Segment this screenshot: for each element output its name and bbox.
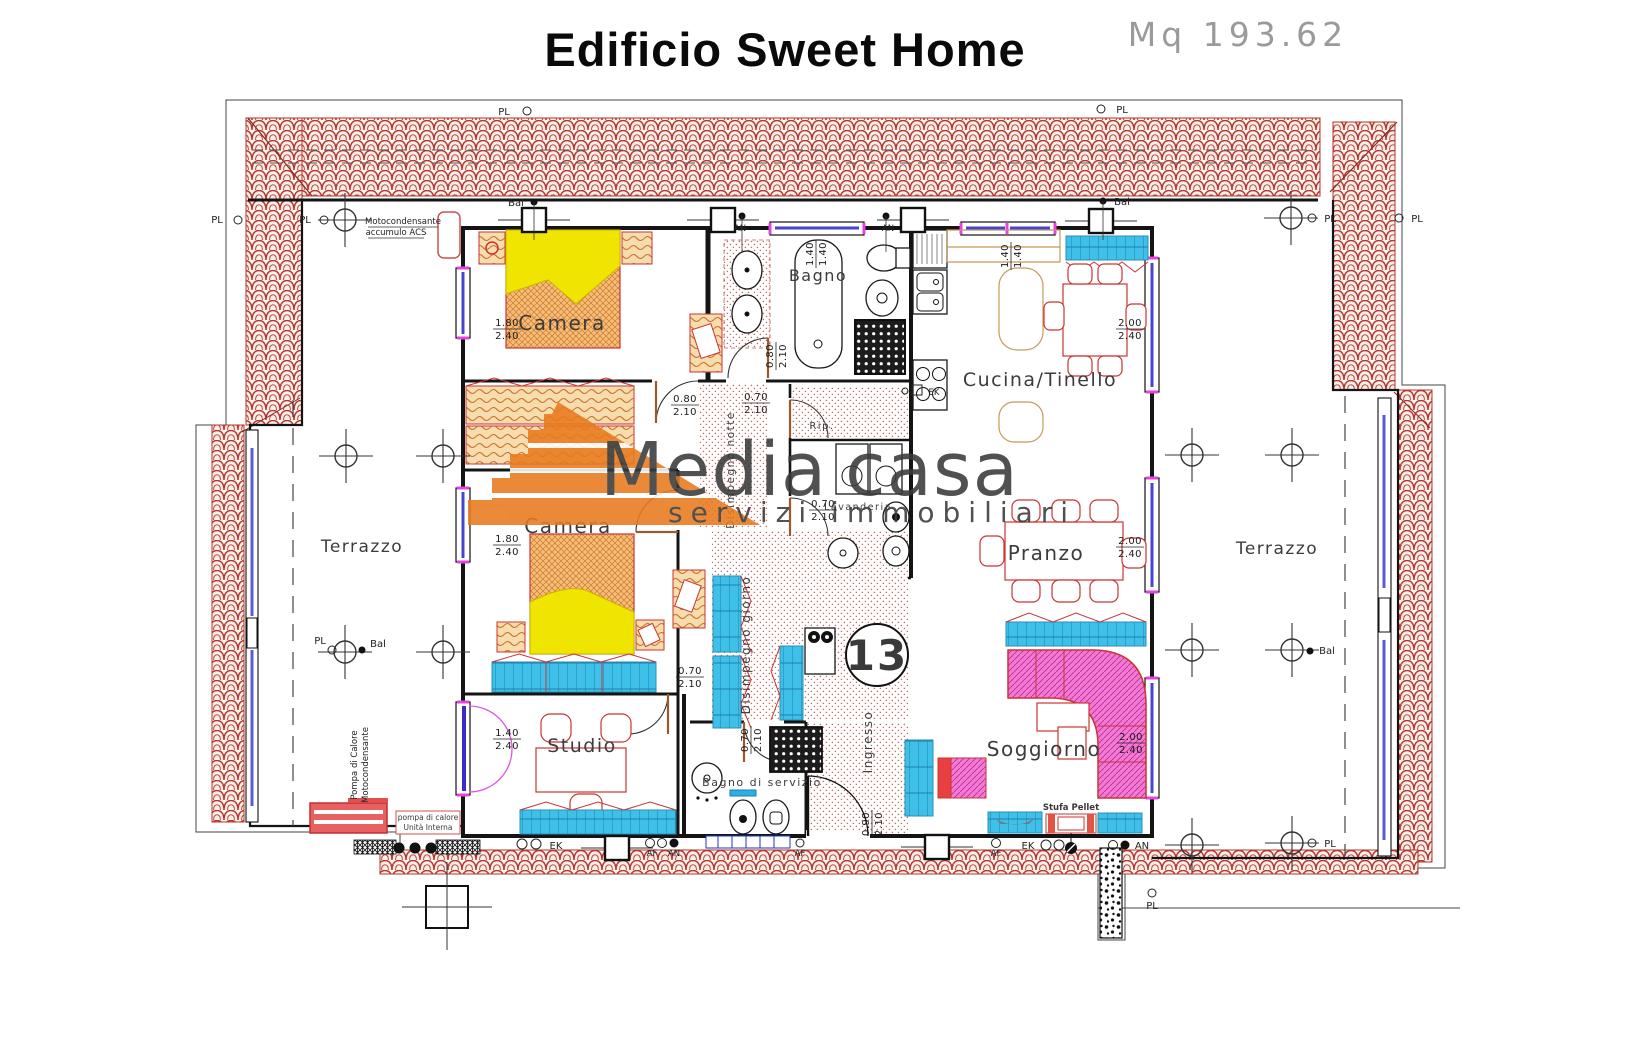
motocondensante-unit: Motocondensante accumulo ACS: [365, 212, 460, 258]
window-camera1: [456, 268, 470, 338]
svg-text:2.40: 2.40: [1119, 745, 1143, 756]
room-label-terrazzo-right: Terrazzo: [1235, 539, 1318, 559]
svg-text:PL: PL: [211, 215, 223, 226]
svg-text:AF: AF: [795, 849, 806, 859]
svg-text:PL: PL: [498, 107, 510, 118]
room-label-studio: Studio: [547, 735, 617, 757]
svg-text:2.10: 2.10: [874, 812, 885, 836]
unit-number-badge: 13: [846, 624, 908, 686]
svg-text:AN: AN: [668, 849, 680, 859]
svg-text:Pompa di Calore: Pompa di Calore: [350, 730, 360, 799]
svg-text:2.10: 2.10: [673, 407, 697, 418]
svg-text:PL: PL: [1116, 105, 1128, 116]
svg-text:2.00: 2.00: [1118, 536, 1142, 547]
svg-text:PL: PL: [299, 215, 311, 226]
window-cucina-top: [961, 222, 1055, 235]
floor-plan-page: Edificio Sweet Home Mq 193.62: [0, 0, 1636, 1052]
stufa-pellet-label: Stufa Pellet: [1043, 803, 1099, 813]
svg-text:0.90: 0.90: [861, 812, 872, 836]
terrace-railing-left: [246, 430, 258, 822]
room-label-cucina: Cucina/Tinello: [963, 369, 1117, 391]
svg-text:1.40: 1.40: [495, 728, 519, 739]
svg-text:PL: PL: [1324, 839, 1336, 850]
window-pranzo: [1145, 478, 1159, 592]
window-soggiorno: [1145, 678, 1159, 798]
floorplan-drawing: Edificio Sweet Home Mq 193.62: [0, 0, 1636, 1052]
page-title: Edificio Sweet Home: [544, 23, 1025, 76]
svg-text:2.10: 2.10: [744, 405, 768, 416]
room-label-bagno-servizio: Bagno di servizio: [702, 776, 822, 789]
svg-text:2.10: 2.10: [753, 728, 764, 752]
svg-text:Bal: Bal: [508, 198, 524, 209]
svg-text:0.70: 0.70: [744, 392, 768, 403]
svg-text:PL: PL: [314, 636, 326, 647]
svg-text:2.00: 2.00: [1119, 732, 1143, 743]
svg-text:Motocondensante: Motocondensante: [365, 217, 441, 227]
svg-text:Bal: Bal: [1114, 197, 1130, 208]
room-label-disimpegno-giorno: Disimpegno giorno: [739, 576, 753, 715]
svg-text:Unità Interna: Unità Interna: [403, 823, 452, 832]
window-bagno: [770, 222, 864, 235]
svg-text:Bal: Bal: [1319, 646, 1335, 657]
terrace-railing-right: [1378, 398, 1391, 856]
svg-text:Motocondensante: Motocondensante: [361, 727, 371, 803]
svg-text:1.40: 1.40: [1013, 244, 1024, 268]
svg-text:1.40: 1.40: [805, 242, 816, 266]
svg-text:2.40: 2.40: [495, 547, 519, 558]
svg-text:1.40: 1.40: [1000, 244, 1011, 268]
svg-text:0.80: 0.80: [765, 344, 776, 368]
svg-text:PL: PL: [1411, 214, 1423, 225]
room-label-pranzo: Pranzo: [1008, 541, 1085, 565]
service-strip: [354, 840, 480, 854]
pompa-calore-unit: Pompa di Calore Motocondensante pompa di…: [310, 727, 460, 834]
room-label-soggiorno: Soggiorno: [987, 737, 1101, 761]
svg-text:2.10: 2.10: [678, 679, 702, 690]
svg-text:2.40: 2.40: [1118, 331, 1142, 342]
svg-text:PL: PL: [1324, 214, 1336, 225]
svg-text:0.70: 0.70: [740, 728, 751, 752]
svg-text:2.40: 2.40: [495, 741, 519, 752]
pillar-below: [402, 862, 492, 950]
room-label-ingresso: Ingresso: [861, 711, 875, 774]
svg-text:AN: AN: [882, 224, 894, 234]
svg-text:EK: EK: [550, 841, 563, 852]
window-cucina-right: [1145, 258, 1159, 392]
svg-text:EK: EK: [929, 388, 940, 398]
room-label-bagno: Bagno: [789, 266, 847, 285]
svg-text:AF: AF: [991, 849, 1002, 859]
svg-text:AN: AN: [1135, 841, 1149, 852]
svg-text:2.40: 2.40: [1118, 549, 1142, 560]
svg-text:13: 13: [846, 631, 908, 680]
svg-text:AN: AN: [734, 224, 746, 234]
svg-text:1.80: 1.80: [495, 534, 519, 545]
svg-text:2.10: 2.10: [778, 344, 789, 368]
window-camera2: [456, 488, 470, 562]
svg-text:1.40: 1.40: [818, 242, 829, 266]
svg-text:EK: EK: [1022, 841, 1035, 852]
svg-text:0.70: 0.70: [678, 666, 702, 677]
svg-text:Bal: Bal: [370, 639, 386, 650]
svg-text:2.00: 2.00: [1118, 318, 1142, 329]
area-label: Mq 193.62: [1128, 15, 1348, 54]
room-label-camera1: Camera: [518, 311, 606, 335]
masonry-column: [1100, 848, 1122, 938]
svg-text:accumulo ACS: accumulo ACS: [366, 228, 427, 238]
svg-text:PL: PL: [1146, 901, 1158, 912]
room-label-terrazzo-left: Terrazzo: [320, 537, 403, 557]
svg-text:1.80: 1.80: [495, 318, 519, 329]
svg-text:pompa di calore: pompa di calore: [398, 813, 459, 822]
mediacasa-tagline: servizi immobiliari: [668, 496, 1076, 529]
svg-text:0.80: 0.80: [673, 394, 697, 405]
svg-text:2.40: 2.40: [495, 331, 519, 342]
svg-text:AF: AF: [647, 849, 658, 859]
